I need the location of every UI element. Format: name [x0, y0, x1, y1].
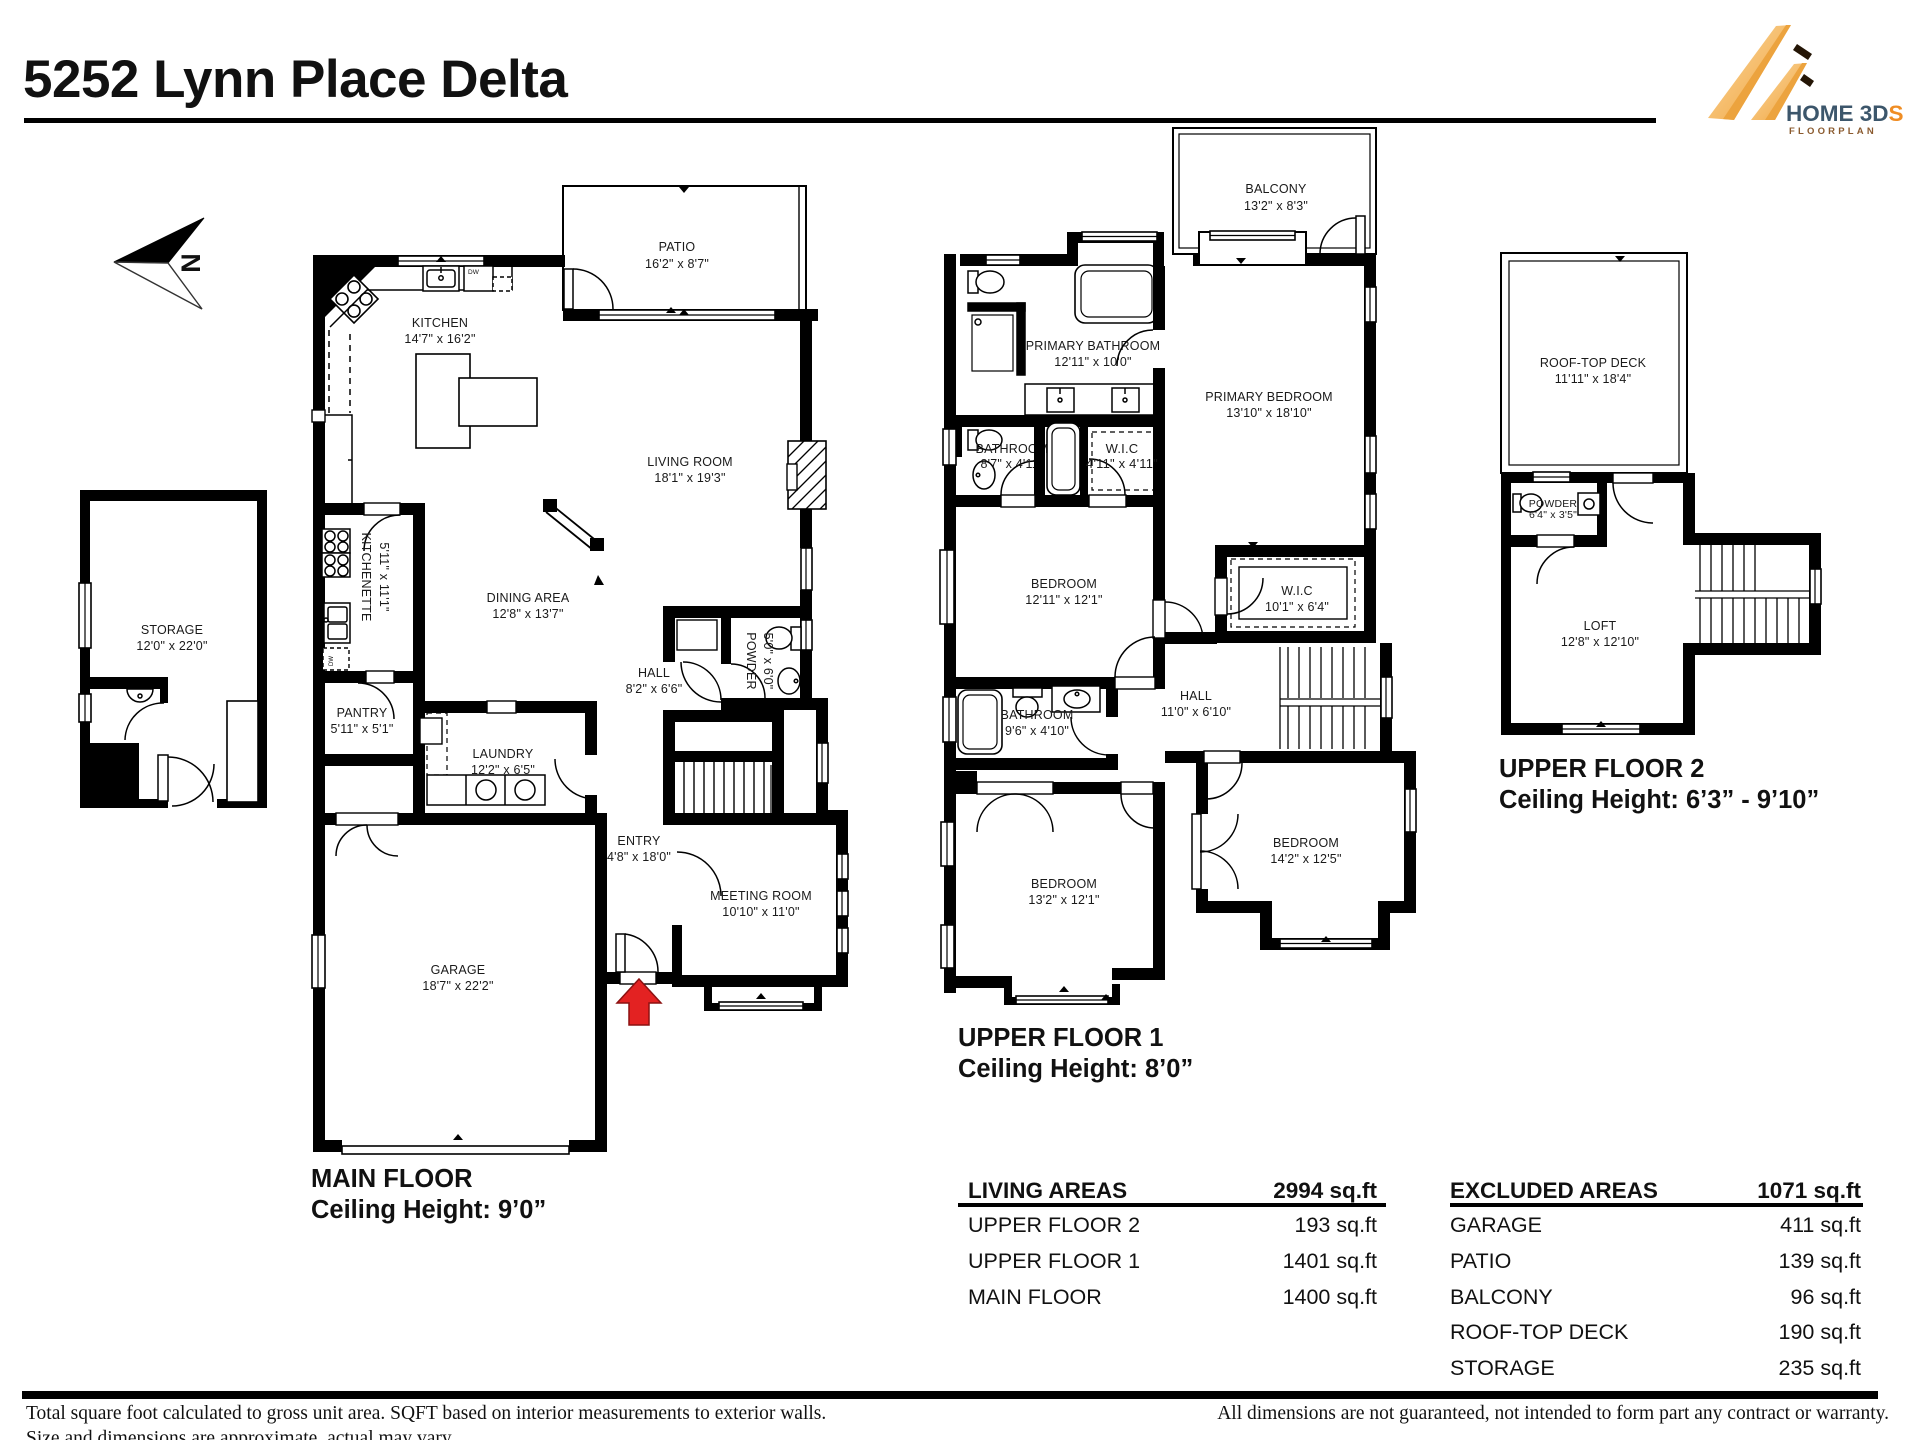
svg-text:5'0" x 6'0": 5'0" x 6'0"	[761, 633, 775, 690]
svg-text:411 sq.ft: 411 sq.ft	[1780, 1213, 1861, 1237]
svg-text:139 sq.ft: 139 sq.ft	[1779, 1249, 1861, 1273]
svg-text:13'10" x 18'10": 13'10" x 18'10"	[1226, 406, 1311, 420]
svg-text:DINING AREA: DINING AREA	[487, 591, 570, 605]
svg-text:96 sq.ft: 96 sq.ft	[1790, 1285, 1861, 1309]
svg-text:DW: DW	[329, 656, 335, 666]
svg-text:193 sq.ft: 193 sq.ft	[1295, 1213, 1377, 1237]
svg-text:11'11" x 18'4": 11'11" x 18'4"	[1555, 372, 1631, 386]
svg-text:16'2" x 8'7": 16'2" x 8'7"	[645, 257, 709, 271]
svg-text:FLOORPLAN: FLOORPLAN	[1789, 126, 1877, 137]
svg-text:BEDROOM: BEDROOM	[1273, 836, 1339, 850]
svg-text:10'10" x 11'0": 10'10" x 11'0"	[722, 905, 799, 919]
svg-text:W.I.C: W.I.C	[1106, 441, 1139, 456]
svg-text:W.I.C: W.I.C	[1281, 584, 1313, 598]
svg-text:PATIO: PATIO	[659, 240, 696, 254]
svg-text:KITCHENETTE: KITCHENETTE	[359, 532, 373, 621]
svg-text:UPPER FLOOR 2: UPPER FLOOR 2	[968, 1213, 1140, 1237]
svg-text:LAUNDRY: LAUNDRY	[473, 747, 534, 761]
svg-text:BEDROOM: BEDROOM	[1031, 877, 1097, 891]
svg-text:4'8" x 18'0": 4'8" x 18'0"	[607, 850, 671, 864]
svg-text:2994 sq.ft: 2994 sq.ft	[1273, 1178, 1377, 1203]
svg-text:12'11" x 10'0": 12'11" x 10'0"	[1054, 355, 1131, 369]
svg-text:ROOF-TOP DECK: ROOF-TOP DECK	[1540, 356, 1647, 370]
svg-text:BATHROOM: BATHROOM	[1001, 708, 1074, 722]
svg-text:5'11" x 11'1": 5'11" x 11'1"	[377, 542, 391, 611]
svg-text:DW: DW	[468, 269, 480, 276]
svg-text:12'11" x 12'1": 12'11" x 12'1"	[1025, 593, 1102, 607]
svg-text:14'2" x 12'5": 14'2" x 12'5"	[1270, 852, 1341, 866]
svg-text:LOFT: LOFT	[1584, 619, 1617, 633]
svg-text:PANTRY: PANTRY	[337, 706, 388, 720]
svg-text:18'7" x 22'2": 18'7" x 22'2"	[422, 979, 493, 993]
svg-text:PRIMARY BATHROOM: PRIMARY BATHROOM	[1026, 339, 1160, 353]
svg-text:13'2" x 12'1": 13'2" x 12'1"	[1028, 893, 1099, 907]
svg-text:POWDER: POWDER	[744, 632, 758, 689]
svg-text:MAIN FLOOR: MAIN FLOOR	[968, 1285, 1102, 1309]
svg-text:ENTRY: ENTRY	[617, 834, 661, 848]
svg-text:Ceiling Height: 9’0”: Ceiling Height: 9’0”	[311, 1196, 546, 1224]
svg-text:HOME 3DS: HOME 3DS	[1786, 101, 1904, 126]
svg-text:BEDROOM: BEDROOM	[1031, 577, 1097, 591]
svg-text:STORAGE: STORAGE	[141, 623, 203, 637]
svg-text:All dimensions are not guarant: All dimensions are not guaranteed, not i…	[1217, 1403, 1889, 1424]
svg-text:BALCONY: BALCONY	[1245, 182, 1307, 196]
svg-text:PATIO: PATIO	[1450, 1249, 1511, 1273]
svg-text:1400 sq.ft: 1400 sq.ft	[1283, 1285, 1377, 1309]
svg-text:1071 sq.ft: 1071 sq.ft	[1757, 1178, 1861, 1203]
svg-text:UPPER FLOOR 2: UPPER FLOOR 2	[1499, 755, 1704, 783]
svg-text:UPPER FLOOR 1: UPPER FLOOR 1	[958, 1024, 1163, 1052]
svg-text:12'0" x 22'0": 12'0" x 22'0"	[136, 639, 207, 653]
svg-text:Total square foot calculated t: Total square foot calculated to gross un…	[26, 1403, 826, 1424]
svg-text:GARAGE: GARAGE	[431, 963, 486, 977]
svg-text:10'1" x 6'4": 10'1" x 6'4"	[1265, 600, 1329, 614]
svg-text:9'6" x 4'10": 9'6" x 4'10"	[1005, 724, 1069, 738]
svg-text:8'2" x 6'6": 8'2" x 6'6"	[626, 682, 683, 696]
svg-text:HALL: HALL	[1180, 689, 1212, 703]
svg-text:13'2" x 8'3": 13'2" x 8'3"	[1244, 199, 1308, 213]
svg-text:Size and dimensions are approx: Size and dimensions are approximate, act…	[26, 1428, 455, 1440]
svg-text:UPPER FLOOR 1: UPPER FLOOR 1	[968, 1249, 1140, 1273]
svg-text:KITCHEN: KITCHEN	[412, 316, 468, 330]
svg-text:BALCONY: BALCONY	[1450, 1285, 1553, 1309]
svg-text:GARAGE: GARAGE	[1450, 1213, 1542, 1237]
svg-text:HALL: HALL	[638, 666, 670, 680]
svg-text:190 sq.ft: 190 sq.ft	[1779, 1320, 1861, 1344]
svg-text:5'11" x 5'1": 5'11" x 5'1"	[330, 722, 393, 736]
svg-text:N: N	[176, 253, 206, 273]
svg-text:MEETING ROOM: MEETING ROOM	[710, 889, 812, 903]
svg-text:MAIN FLOOR: MAIN FLOOR	[311, 1165, 472, 1193]
svg-text:11'0" x 6'10": 11'0" x 6'10"	[1161, 705, 1231, 719]
svg-text:EXCLUDED AREAS: EXCLUDED AREAS	[1450, 1178, 1658, 1203]
svg-text:PRIMARY BEDROOM: PRIMARY BEDROOM	[1205, 390, 1333, 404]
svg-text:LIVING AREAS: LIVING AREAS	[968, 1178, 1127, 1203]
svg-text:235 sq.ft: 235 sq.ft	[1779, 1356, 1861, 1380]
svg-text:12'2" x 6'5": 12'2" x 6'5"	[471, 763, 535, 777]
svg-text:4'11" x 4'11": 4'11" x 4'11"	[1086, 456, 1158, 471]
svg-text:STORAGE: STORAGE	[1450, 1356, 1555, 1380]
svg-text:12'8" x 13'7": 12'8" x 13'7"	[492, 607, 563, 621]
svg-text:18'1" x 19'3": 18'1" x 19'3"	[654, 471, 725, 485]
svg-text:1401 sq.ft: 1401 sq.ft	[1283, 1249, 1377, 1273]
svg-text:LIVING ROOM: LIVING ROOM	[647, 455, 733, 469]
svg-text:Ceiling Height: 6’3” - 9’10”: Ceiling Height: 6’3” - 9’10”	[1499, 786, 1819, 814]
svg-text:6'4" x 3'5": 6'4" x 3'5"	[1529, 509, 1577, 521]
svg-text:ROOF-TOP DECK: ROOF-TOP DECK	[1450, 1320, 1629, 1344]
svg-text:12'8" x 12'10": 12'8" x 12'10"	[1561, 635, 1639, 649]
svg-text:5252 Lynn Place Delta: 5252 Lynn Place Delta	[23, 50, 568, 109]
svg-text:14'7" x 16'2": 14'7" x 16'2"	[404, 332, 475, 346]
svg-text:Ceiling Height: 8’0”: Ceiling Height: 8’0”	[958, 1055, 1193, 1083]
